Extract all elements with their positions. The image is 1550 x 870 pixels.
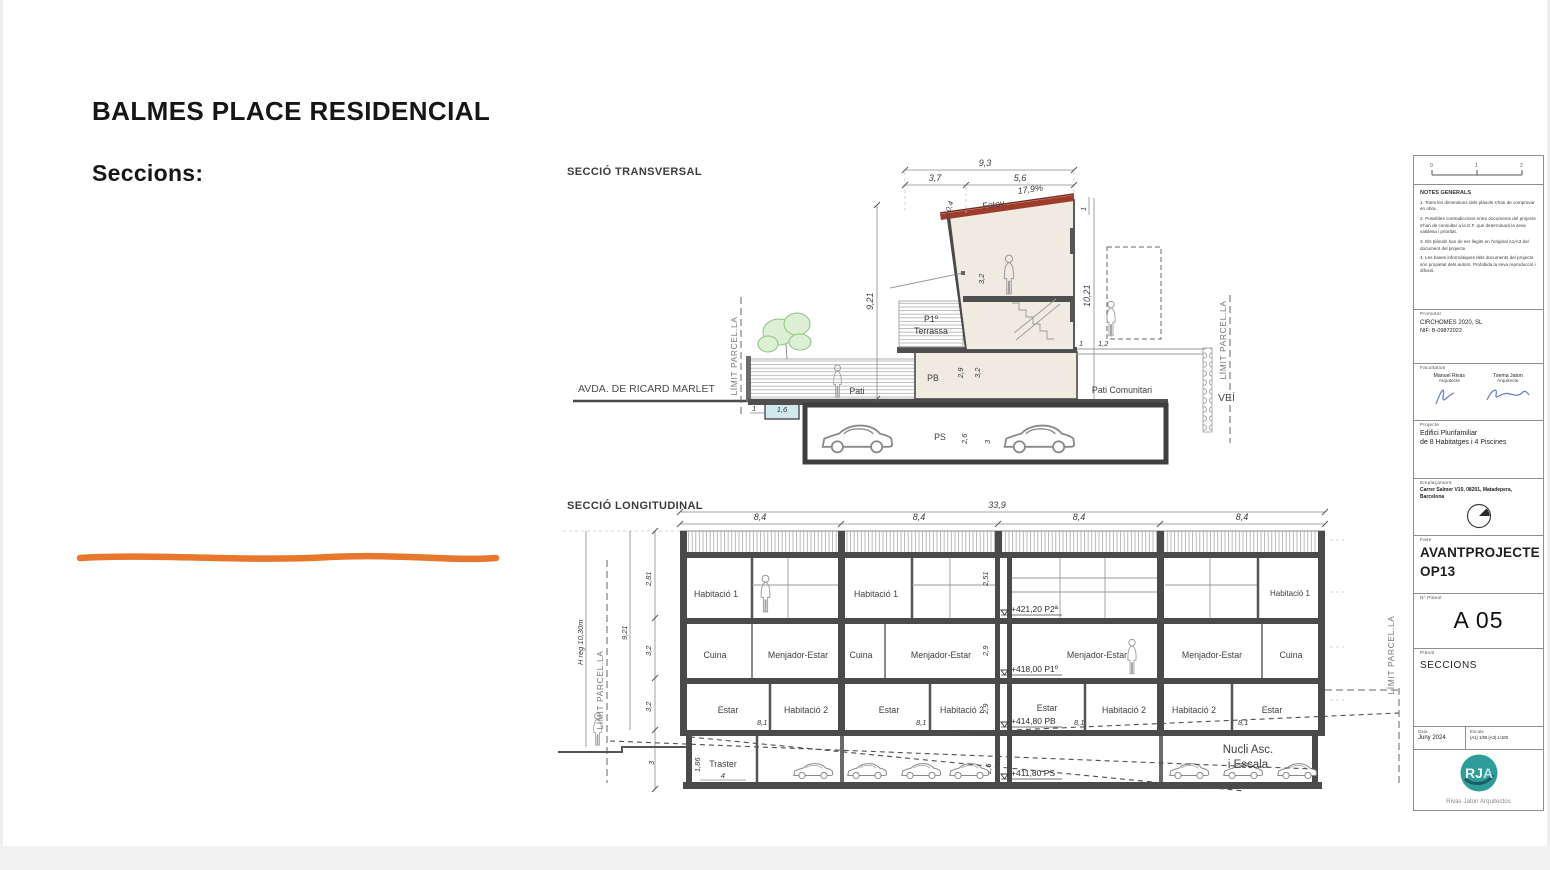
note-2: 2. Possibles contradiccions entre docume… [1420, 216, 1537, 235]
car-icon [794, 764, 833, 779]
scale-label: Escala [1470, 729, 1539, 734]
sheet-name-label: Plànol [1420, 651, 1537, 656]
room-label: Menjador-Estar [768, 650, 828, 660]
room-label: Habitació 2 [1172, 705, 1216, 715]
room-label: Menjador-Estar [1182, 650, 1242, 660]
emplacament-section: Emplaçament Carrer Salmer V10, 08201, Ma… [1414, 479, 1543, 536]
room-label: Habitació 1 [1270, 589, 1311, 598]
accent-underline [80, 556, 496, 559]
limit-left-label: LÍMIT PARCEL.LA [729, 316, 739, 395]
fase-line-2: OP13 [1420, 564, 1537, 581]
dim-left-width: 3,7 [929, 173, 943, 183]
promotor-nif: NIF: B-09872022 [1420, 328, 1537, 334]
svg-text:1: 1 [1475, 163, 1478, 169]
window-edge-bottom [0, 846, 1550, 870]
emplacament-label: Emplaçament [1420, 481, 1537, 486]
promotor-section: Promotor CIRCHOMES 2020, SL NIF: B-09872… [1414, 310, 1543, 364]
room-label: Menjador-Estar [1067, 650, 1127, 660]
promotor-label: Promotor [1420, 312, 1537, 317]
projecte-line-1: Edifici Plurifamiliar [1420, 430, 1537, 437]
scale-value: (A1) 1/50 (A3) 1/100 [1470, 735, 1539, 740]
note-3: 3. Els plànols han de ser llegits en l'o… [1420, 239, 1537, 252]
date-label: Data [1418, 729, 1461, 734]
street-label: AVDA. DE RICARD MARLET [578, 383, 715, 395]
svg-text:A: A [1483, 765, 1493, 781]
room-label: Habitació 2 [784, 705, 828, 715]
note-1: 1. Totes les dimensions dels plànols s'h… [1420, 200, 1537, 213]
dim-h-p1: 3,2 [644, 645, 653, 656]
rja-logo: RJ A [1457, 753, 1501, 795]
dim-bay-3: 8,4 [1073, 512, 1086, 522]
pati-label: Pati [849, 386, 864, 396]
fase-label: Fase [1420, 538, 1537, 543]
room-label: Habitació 1 [694, 589, 738, 599]
elevation-ps: +411,80 PS [1011, 768, 1055, 778]
slope-label: 17,9% [1017, 183, 1044, 196]
scale-bar-section: 0 1 2 [1414, 156, 1543, 185]
dim-ps-clear: 2,6 [960, 433, 969, 445]
sheet-name: SECCIONS [1420, 660, 1537, 671]
sheet-number-label: Nº Plànol [1420, 596, 1537, 601]
sheet-number-section: Nº Plànol A 05 [1414, 594, 1543, 649]
dim-vei-12: 1,2 [1098, 339, 1109, 348]
dim-bay-4: 8,4 [1236, 512, 1249, 522]
dim-h-total: 9,21 [620, 625, 629, 640]
dim-total-width: 9,3 [979, 158, 992, 168]
room-label: Traster [709, 759, 737, 769]
vei-label: VEÍ [1218, 391, 1235, 404]
dim-bay-1: 8,4 [754, 512, 767, 522]
fase-line-1: AVANTPROJECTE [1420, 545, 1537, 562]
projecte-section: Projecte Edifici Plurifamiliar de 8 Habi… [1414, 421, 1543, 479]
room-label: Habitació 1 [854, 589, 898, 599]
car-icon [1170, 764, 1209, 779]
room-label: Estar [718, 705, 739, 715]
title-block: 0 1 2 NOTES GENERALS 1. Totes les dimens… [1413, 155, 1544, 811]
dim-traster-h: 1,86 [693, 757, 702, 772]
elevation-pb: +414,80 PB [1011, 716, 1056, 726]
window-edge-left [0, 0, 3, 870]
room-label: Cuina [704, 650, 727, 660]
car-icon [848, 764, 887, 779]
dim-room-w: 8,1 [1074, 718, 1084, 727]
scale-bar: 0 1 2 [1420, 158, 1537, 183]
elevation-p2: +421,20 P2ª [1011, 604, 1059, 614]
nucli-label-2: i Escala [1228, 759, 1269, 771]
emplacament-line-2: Barcelona [1420, 494, 1537, 500]
room-label: Habitació 2 [940, 705, 984, 715]
dim-vei-1: 1 [1079, 339, 1083, 348]
slide-canvas: BALMES PLACE RESIDENCIAL Seccions: [0, 0, 1550, 870]
dim-h-reg: H reg 10,30m [576, 620, 585, 665]
person-icon [1128, 639, 1136, 673]
limit-right-label: LÍMIT PARCEL.LA [1218, 300, 1228, 379]
dim-i-p1: 2,9 [981, 645, 990, 657]
svg-text:RJ: RJ [1465, 765, 1483, 781]
room-label: Cuina [850, 650, 873, 660]
car-icon [1278, 764, 1317, 779]
notes-title: NOTES GENERALS [1420, 190, 1537, 196]
transversal-section: SECCIÓ TRANSVERSAL AVDA. DE RICARD MARLE… [567, 158, 1235, 462]
logo-section: RJ A Rivas Jaton Arquitectos [1414, 750, 1543, 806]
dim-bay-2: 8,4 [913, 512, 926, 522]
facultatius-section: Facultatius Manuel Rivas Arquitecte Txem… [1414, 364, 1543, 421]
dim-pb-clear: 2,9 [956, 367, 965, 379]
date-value: Juny 2024 [1418, 735, 1461, 741]
nucli-label-1: Nucli Asc. [1223, 744, 1274, 756]
transversal-title: SECCIÓ TRANSVERSAL [567, 165, 702, 178]
dim-pool-width: 1,6 [777, 405, 788, 414]
signature-icon [1432, 384, 1466, 408]
note-4: 4. Les bases informàtiques dels document… [1420, 255, 1537, 274]
dim-h-p2: 2,81 [644, 571, 653, 587]
room-label: Menjador-Estar [911, 650, 971, 660]
person-icon [761, 575, 770, 612]
tree-icon [758, 313, 811, 359]
projecte-line-2: de 8 Habitatges i 4 Piscines [1420, 439, 1537, 446]
car-icon [902, 764, 941, 779]
dim-pb-height: 3,2 [973, 367, 982, 378]
dim-right-width: 5,6 [1014, 173, 1027, 183]
limit-right-label: LÍMIT PARCEL.LA [1386, 615, 1396, 694]
promotor-name: CIRCHOMES 2020, SL [1420, 320, 1537, 326]
pati-comunitari-label: Pati Comunitari [1092, 385, 1152, 395]
fase-section: Fase AVANTPROJECTE OP13 [1414, 536, 1543, 594]
sheet-number: A 05 [1420, 607, 1537, 634]
emplacament-line-1: Carrer Salmer V10, 08201, Matadepera, [1420, 487, 1537, 493]
meta-section: Data Juny 2024 Escala (A1) 1/50 (A3) 1/1… [1414, 727, 1543, 750]
room-label: Estar [1037, 703, 1058, 713]
dim-total: 33,9 [988, 500, 1006, 510]
dim-h-left: 9,21 [865, 292, 875, 310]
dim-traster-w: 4 [721, 771, 725, 780]
dim-roof-h: 1 [1079, 207, 1088, 211]
terrassa-label: Terrassa [914, 326, 948, 336]
facultatius-label: Facultatius [1420, 366, 1537, 371]
person-icon [1107, 301, 1115, 335]
pb-label: PB [927, 373, 939, 383]
sheet-name-section: Plànol SECCIONS [1414, 649, 1543, 727]
dim-i-p2: 2,51 [981, 571, 990, 587]
compass-icon [1464, 502, 1494, 530]
sections-drawing: SECCIÓ TRANSVERSAL AVDA. DE RICARD MARLE… [0, 0, 1550, 870]
ps-label: PS [934, 432, 946, 442]
logo-caption: Rivas Jaton Arquitectos [1420, 798, 1537, 805]
svg-text:0: 0 [1430, 163, 1433, 169]
projecte-label: Projecte [1420, 423, 1537, 428]
dim-room-w: 8,1 [757, 718, 767, 727]
room-label: Cuina [1280, 650, 1303, 660]
elevation-p1: +418,00 P1º [1011, 664, 1058, 674]
signature-icon [1485, 384, 1531, 408]
svg-text:2: 2 [1520, 163, 1523, 169]
notes-section: NOTES GENERALS 1. Totes les dimensions d… [1414, 185, 1543, 310]
dim-h-right: 10,21 [1082, 284, 1092, 307]
longitudinal-section: SECCIÓ LONGITUDINAL 33,9 8,4 8,4 8,4 8,4 [558, 499, 1399, 792]
dim-h-pb: 3,2 [644, 701, 653, 712]
dim-room-w: 8,1 [916, 718, 926, 727]
room-label: Estar [1262, 705, 1283, 715]
dim-p2-height: 3,2 [977, 273, 986, 284]
p1-label: P1º [924, 314, 939, 324]
car-icon [950, 764, 989, 779]
room-label: Habitació 2 [1102, 705, 1146, 715]
dim-pool-offset: 1 [752, 404, 756, 413]
room-label: Estar [879, 705, 900, 715]
